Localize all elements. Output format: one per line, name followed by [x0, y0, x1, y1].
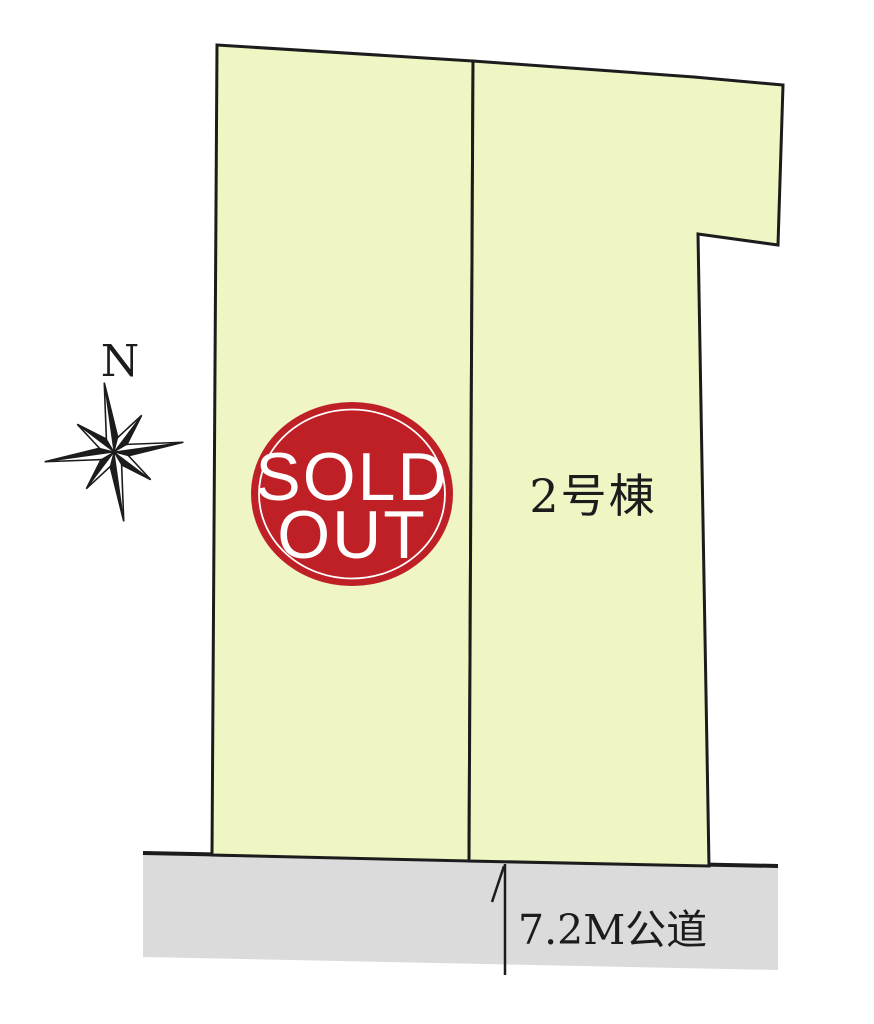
sold-out-badge: SOLD OUT	[251, 402, 453, 586]
compass-star-icon	[35, 373, 193, 531]
diagram-canvas: 2号棟 SOLD OUT N 7.2M公道	[0, 0, 874, 1024]
lot-unit2-label: 2号棟	[529, 469, 656, 523]
compass-rose: N	[35, 336, 193, 531]
compass-north-label: N	[101, 336, 140, 387]
road-label: 7.2M公道	[518, 906, 707, 954]
lot-layout-diagram: 2号棟 SOLD OUT N 7.2M公道	[0, 0, 874, 1024]
sold-out-text-line2: OUT	[277, 497, 427, 573]
lot-unit2-parcel	[469, 61, 783, 866]
